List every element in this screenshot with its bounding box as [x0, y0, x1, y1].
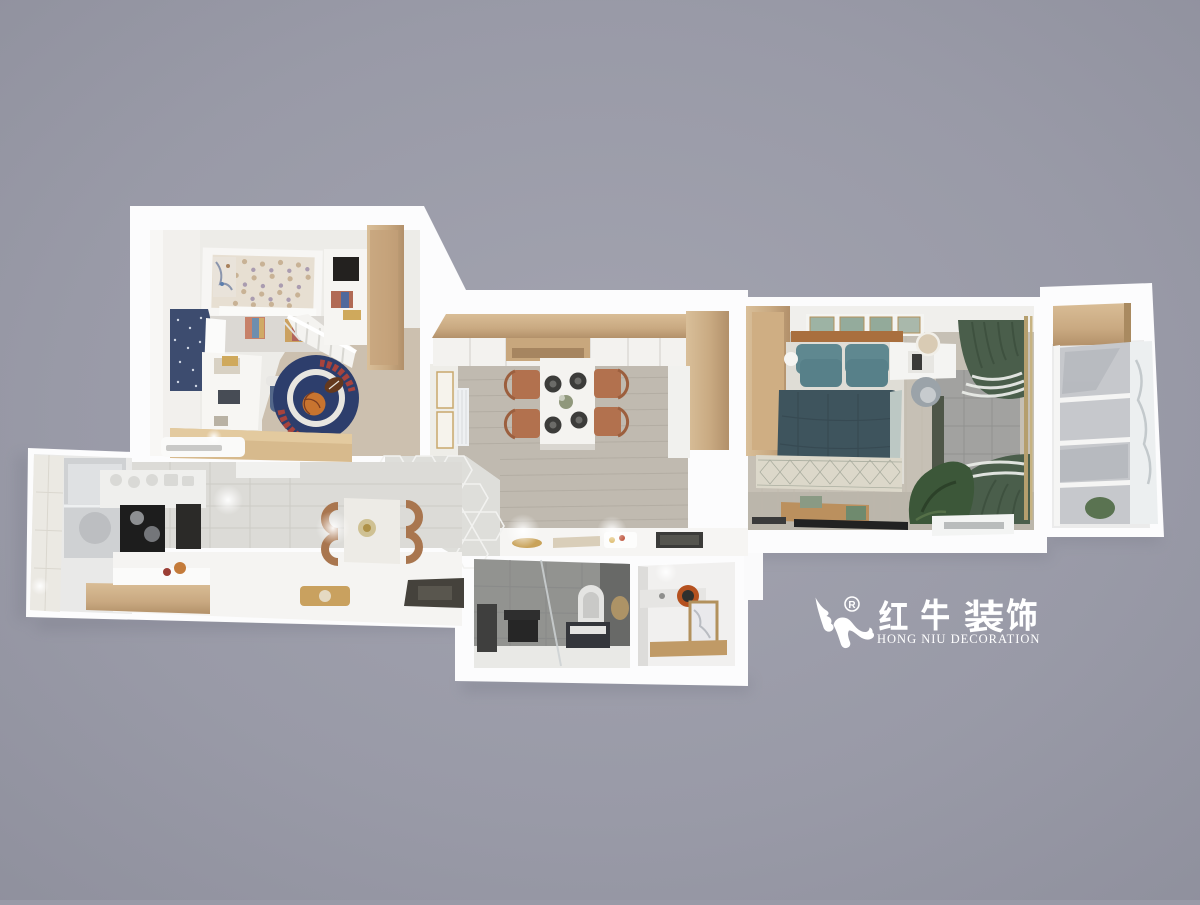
svg-text:R: R — [848, 600, 856, 611]
svg-text:HONG NIU DECORATION: HONG NIU DECORATION — [877, 632, 1040, 646]
